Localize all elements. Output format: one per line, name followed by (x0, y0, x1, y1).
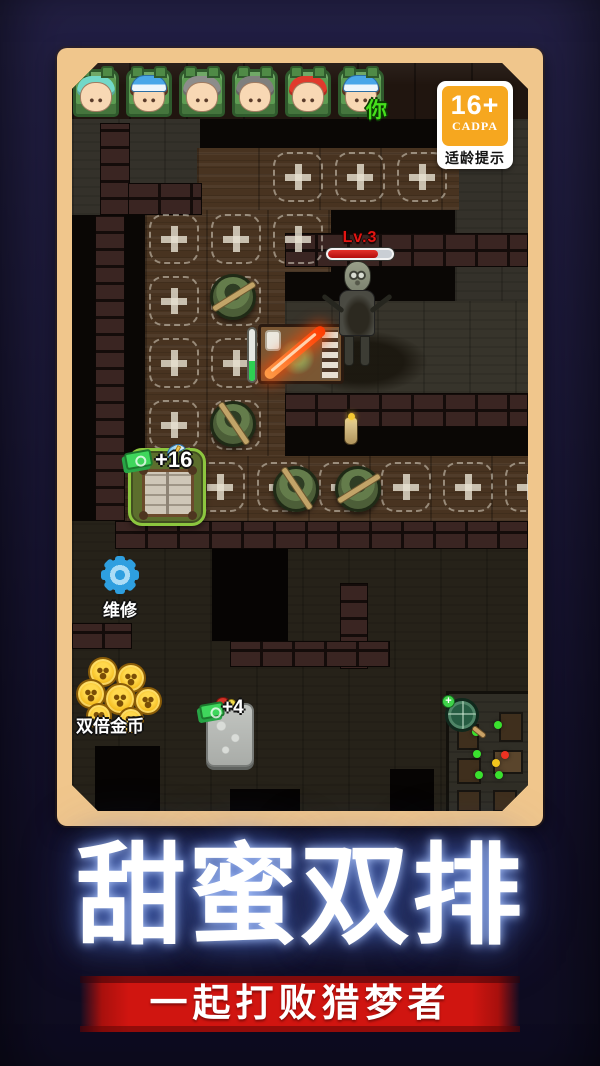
bucket-prop (210, 274, 256, 320)
floor-tile-slot (273, 152, 323, 202)
player-seat-2[interactable] (126, 69, 172, 117)
wall-segment (230, 641, 390, 667)
promo-section: 甜蜜双排 一起打败猎梦者 (0, 832, 600, 1032)
rock-bonus-label: +4 (222, 697, 244, 719)
you-label: 你 (366, 94, 387, 124)
minimap-dot (473, 750, 481, 758)
floor-tile-slot (211, 214, 261, 264)
promo-title: 甜蜜双排 (0, 832, 600, 962)
promo-subtitle: 一起打败猎梦者 (80, 976, 520, 1032)
player-seat-4[interactable] (232, 69, 278, 117)
player-face (186, 82, 218, 112)
money-icon (124, 449, 154, 470)
wall-segment (95, 215, 125, 521)
zombie-body (339, 290, 375, 336)
player-seat-1[interactable] (73, 69, 119, 117)
player-face (292, 82, 324, 112)
floor-tile-slot (149, 338, 199, 388)
bucket-prop (273, 466, 319, 512)
zombie-legs (331, 336, 383, 366)
floor-tile-slot (335, 152, 385, 202)
age-rating-number: 16+ (442, 91, 508, 119)
zombie-head (344, 261, 371, 292)
magnifier-icon: + (445, 698, 479, 732)
page-background: Lv.3 (0, 0, 600, 1066)
rock-reward[interactable]: +4 (206, 703, 254, 767)
age-rating-org: CADPA (442, 119, 508, 134)
zombie-enemy (331, 261, 383, 381)
minimap-dot (501, 751, 509, 759)
minimap-dot (494, 721, 502, 729)
gear-icon (100, 555, 140, 595)
double-coins-label: 双倍金币 (76, 712, 144, 737)
age-rating-box: 16+ CADPA (442, 86, 508, 146)
repair-button[interactable]: 维修 (84, 555, 156, 621)
build-bonus-label: +16 (155, 447, 192, 473)
age-rating-caption: 适龄提示 (442, 148, 508, 168)
repair-label: 维修 (84, 596, 156, 621)
pillow (265, 330, 281, 351)
bed-icon (142, 469, 194, 517)
floor-tile-slot (443, 462, 493, 512)
enemy-hp-bar (326, 248, 394, 260)
wall-segment (285, 393, 528, 427)
double-coins-label-wrap: 双倍金币 (76, 711, 144, 737)
enemy-status: Lv.3 (310, 229, 410, 260)
player-face (239, 82, 271, 112)
game-screen: Lv.3 (72, 63, 528, 811)
wall-segment (72, 623, 132, 649)
floor-tile-slot (149, 214, 199, 264)
floor-tile-slot (505, 462, 528, 512)
dark-doorway (230, 789, 300, 811)
promo-banner: 一起打败猎梦者 (80, 976, 520, 1032)
station-progress-bar (247, 327, 257, 383)
station-progress-fill (249, 361, 255, 381)
dark-doorway (95, 746, 160, 811)
minimap[interactable]: + (446, 691, 528, 811)
floor-tile-slot (149, 276, 199, 326)
bucket-prop (335, 466, 381, 512)
player-face (80, 82, 112, 112)
bucket-prop (210, 401, 256, 447)
avatar-row: 你 (72, 69, 384, 119)
minimap-dot (495, 771, 503, 779)
minimap-dot (492, 759, 500, 767)
player-seat-5[interactable] (285, 69, 331, 117)
dark-doorway (390, 769, 434, 811)
dark-room (212, 549, 288, 641)
build-bed-button[interactable]: +16 (128, 448, 206, 526)
floor-tile-slot (381, 462, 431, 512)
minimap-dot (475, 771, 483, 779)
enemy-level-label: Lv.3 (310, 229, 410, 247)
age-rating-badge: 16+ CADPA 适龄提示 (437, 81, 513, 169)
candle-prop (344, 417, 358, 445)
wall-segment (100, 123, 130, 215)
player-hat (343, 75, 379, 92)
enemy-hp-fill (328, 250, 378, 258)
player-hat (131, 75, 167, 92)
wall-segment (128, 183, 202, 215)
game-frame: Lv.3 (57, 48, 543, 826)
player-seat-3[interactable] (179, 69, 225, 117)
player-seat-6[interactable]: 你 (338, 69, 384, 117)
